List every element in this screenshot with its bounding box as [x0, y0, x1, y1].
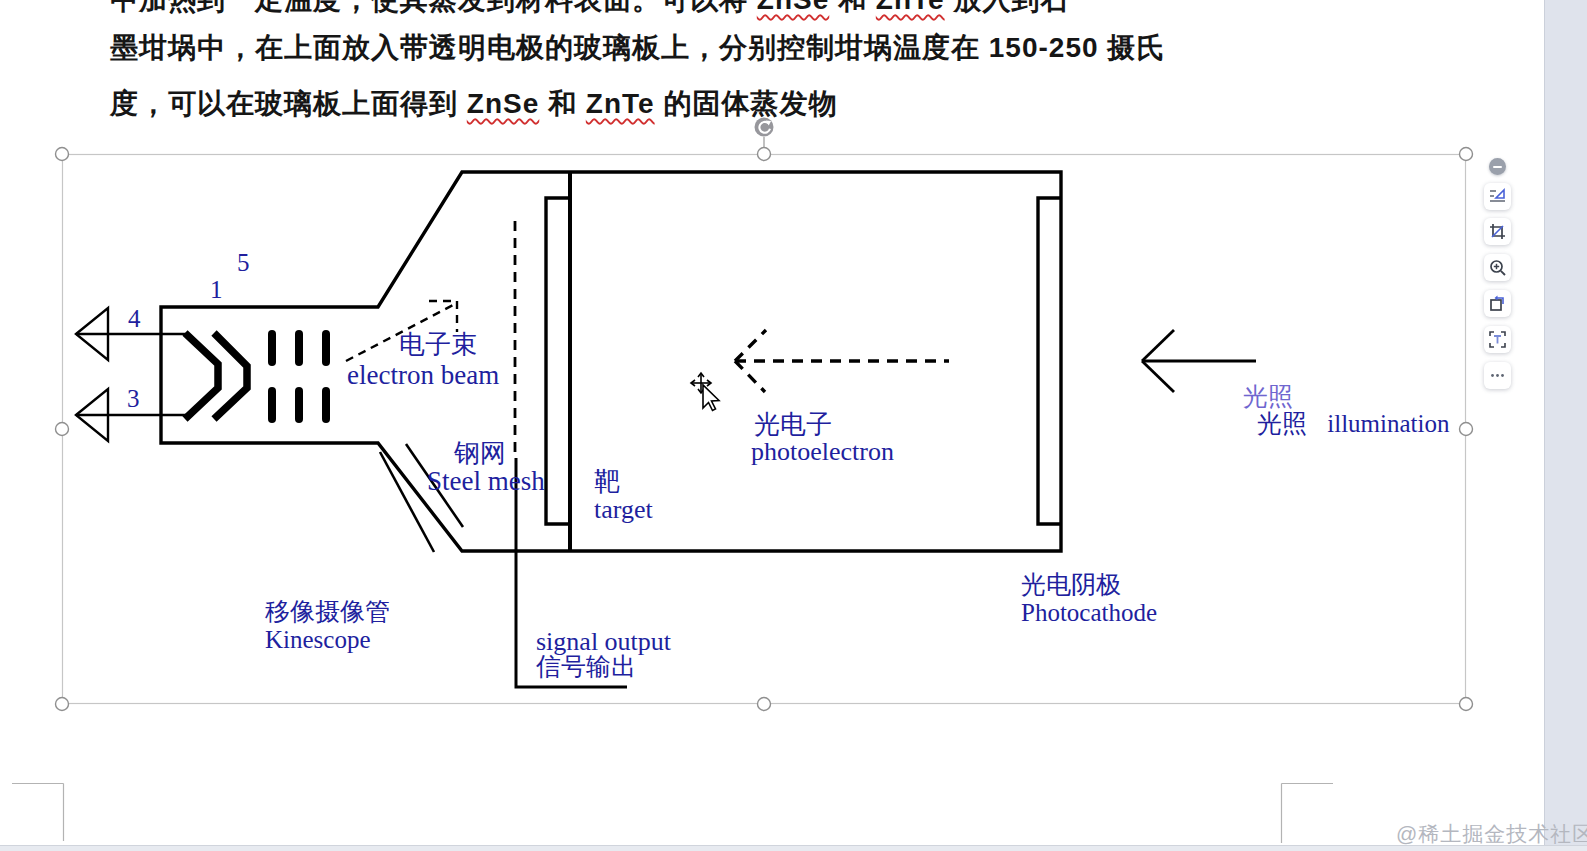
zoom-in-icon — [1489, 259, 1506, 276]
label-signal-output-en: signal output — [536, 628, 671, 655]
handle-top-left[interactable] — [56, 148, 69, 161]
text-frame-icon — [1489, 331, 1506, 348]
toolbar-collapse-button[interactable] — [1489, 158, 1506, 175]
bottom-taskbar-strip — [0, 845, 1587, 851]
label-number-3: 3 — [127, 386, 140, 412]
zoom-in-button[interactable] — [1484, 254, 1511, 281]
handle-mid-left[interactable] — [56, 423, 69, 436]
label-signal-output-cn: 信号输出 — [536, 654, 636, 680]
page-margin-marks — [12, 784, 1333, 844]
handle-bottom-right[interactable] — [1460, 698, 1473, 711]
rotate-icon — [1489, 295, 1506, 312]
watermark-text: @稀土掘金技术社区 — [1396, 820, 1587, 848]
label-target-en: target — [594, 496, 653, 523]
label-target-cn: 靶 — [594, 468, 620, 495]
electron-gun — [76, 308, 326, 441]
wrap-position-button[interactable] — [1484, 183, 1511, 210]
document-editor-page: { "document": { "line1_parts": ["中加热到一定温… — [0, 0, 1587, 851]
more-options-button[interactable] — [1484, 362, 1511, 389]
label-illumination-cn-upper: 光照 — [1243, 384, 1293, 410]
cathode-chevron — [185, 333, 218, 419]
illumination-arrow — [1142, 330, 1256, 392]
target-plate — [546, 198, 570, 524]
label-steel-mesh-en: Steel mesh — [427, 467, 545, 495]
lead-arrow-4 — [76, 308, 108, 360]
label-photocathode-en: Photocathode — [1021, 600, 1157, 626]
label-photoelectron-cn: 光电子 — [754, 411, 832, 438]
label-number-4: 4 — [128, 306, 141, 332]
grid-electrodes — [272, 334, 326, 419]
crop-button[interactable] — [1484, 218, 1511, 245]
label-photocathode-cn: 光电阴极 — [1021, 572, 1121, 598]
label-number-1: 1 — [210, 277, 223, 303]
label-illumination-line: 光照 illumination — [1257, 411, 1449, 437]
label-kinescope-cn: 移像摄像管 — [265, 599, 390, 625]
label-kinescope-en: Kinescope — [265, 627, 371, 653]
handle-bottom-center[interactable] — [758, 698, 771, 711]
label-steel-mesh-cn: 钢网 — [454, 440, 506, 467]
label-photoelectron-en: photoelectron — [751, 438, 894, 465]
workspace-side-band — [1544, 0, 1587, 845]
photocathode-plate — [1038, 198, 1061, 524]
handle-mid-right[interactable] — [1460, 423, 1473, 436]
select-text-button[interactable] — [1484, 326, 1511, 353]
label-electron-beam-en: electron beam — [347, 361, 499, 389]
lead-arrow-3 — [76, 389, 108, 441]
label-illumination-cn-lower: 光照 — [1257, 410, 1307, 437]
handle-top-center[interactable] — [758, 148, 771, 161]
label-electron-beam-cn: 电子束 — [399, 331, 477, 358]
text-wrap-icon — [1489, 188, 1506, 205]
crop-icon — [1489, 223, 1506, 240]
label-illumination-en: illumination — [1327, 410, 1449, 437]
ellipsis-icon — [1489, 367, 1506, 384]
handle-top-right[interactable] — [1460, 148, 1473, 161]
rotate-handle[interactable] — [755, 118, 774, 150]
photoelectron-arrow — [735, 330, 949, 392]
handle-bottom-left[interactable] — [56, 698, 69, 711]
label-number-5: 5 — [237, 250, 250, 276]
rotate-button[interactable] — [1484, 290, 1511, 317]
minus-icon — [1493, 166, 1502, 168]
move-cursor-icon — [691, 373, 719, 411]
